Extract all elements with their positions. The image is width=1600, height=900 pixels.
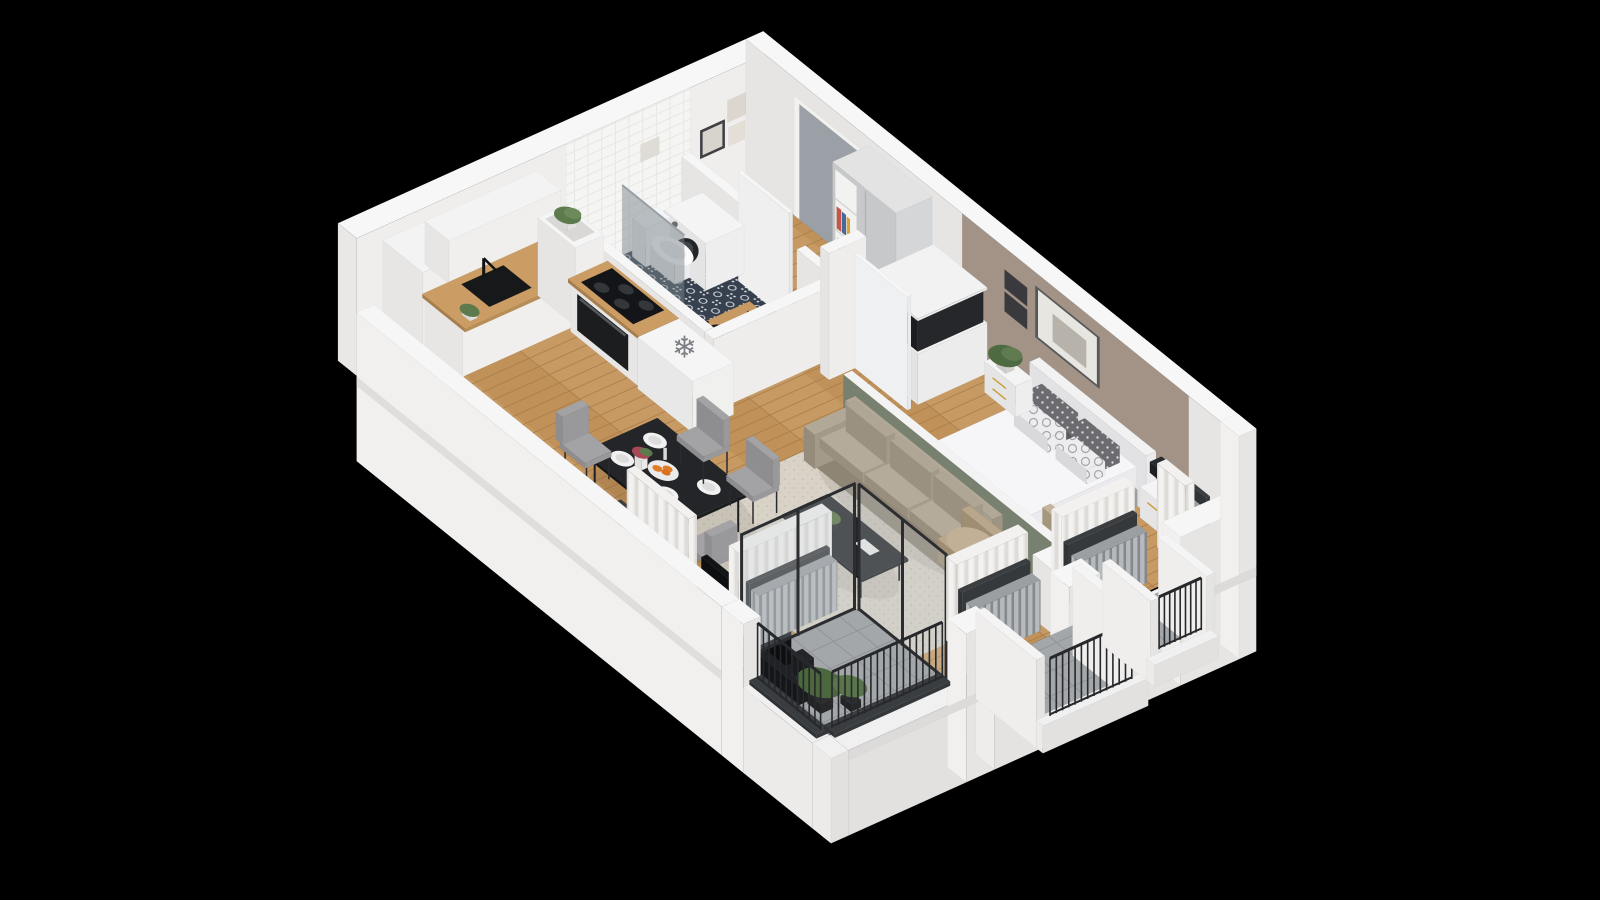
dining-chair-4-back <box>556 412 563 445</box>
facade-pillar-loggia-start <box>722 607 743 773</box>
freezer-snowflake-icon: ❄ <box>672 331 697 366</box>
bedroom-door-wall-stub <box>820 246 829 380</box>
books-2 <box>842 212 846 236</box>
dining-chair-2-back <box>773 457 780 488</box>
books-1 <box>837 206 842 232</box>
facade-corner-block <box>812 743 831 843</box>
back-wall-northwest <box>338 223 357 376</box>
balcony2-slab <box>1036 721 1043 754</box>
floorplan-3d-render: ●●●❄ <box>0 0 1600 900</box>
facade-corner-block <box>831 750 848 843</box>
facade-corner-east <box>1239 429 1256 660</box>
dining-chair-1-back <box>723 417 730 448</box>
bedroom-door-open <box>907 295 911 410</box>
screenshot-canvas: ●●●❄ <box>0 0 1600 900</box>
facade-corner-east <box>1220 421 1239 659</box>
